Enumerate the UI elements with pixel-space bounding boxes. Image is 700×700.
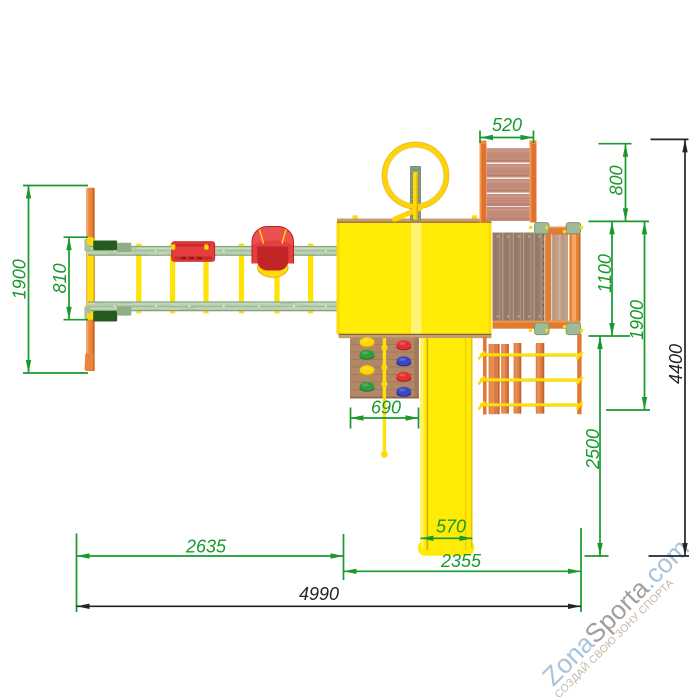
svg-text:2500: 2500 (583, 429, 603, 470)
svg-text:1900: 1900 (10, 259, 30, 299)
svg-text:570: 570 (436, 517, 466, 537)
svg-text:1900: 1900 (627, 300, 647, 340)
svg-text:1100: 1100 (595, 254, 615, 293)
svg-text:520: 520 (492, 115, 522, 135)
svg-text:4990: 4990 (299, 584, 339, 604)
svg-text:2635: 2635 (185, 537, 227, 557)
svg-text:4400: 4400 (666, 344, 686, 384)
svg-text:2355: 2355 (440, 551, 482, 571)
svg-text:810: 810 (50, 263, 70, 293)
svg-text:690: 690 (371, 398, 401, 418)
svg-text:800: 800 (607, 165, 627, 195)
